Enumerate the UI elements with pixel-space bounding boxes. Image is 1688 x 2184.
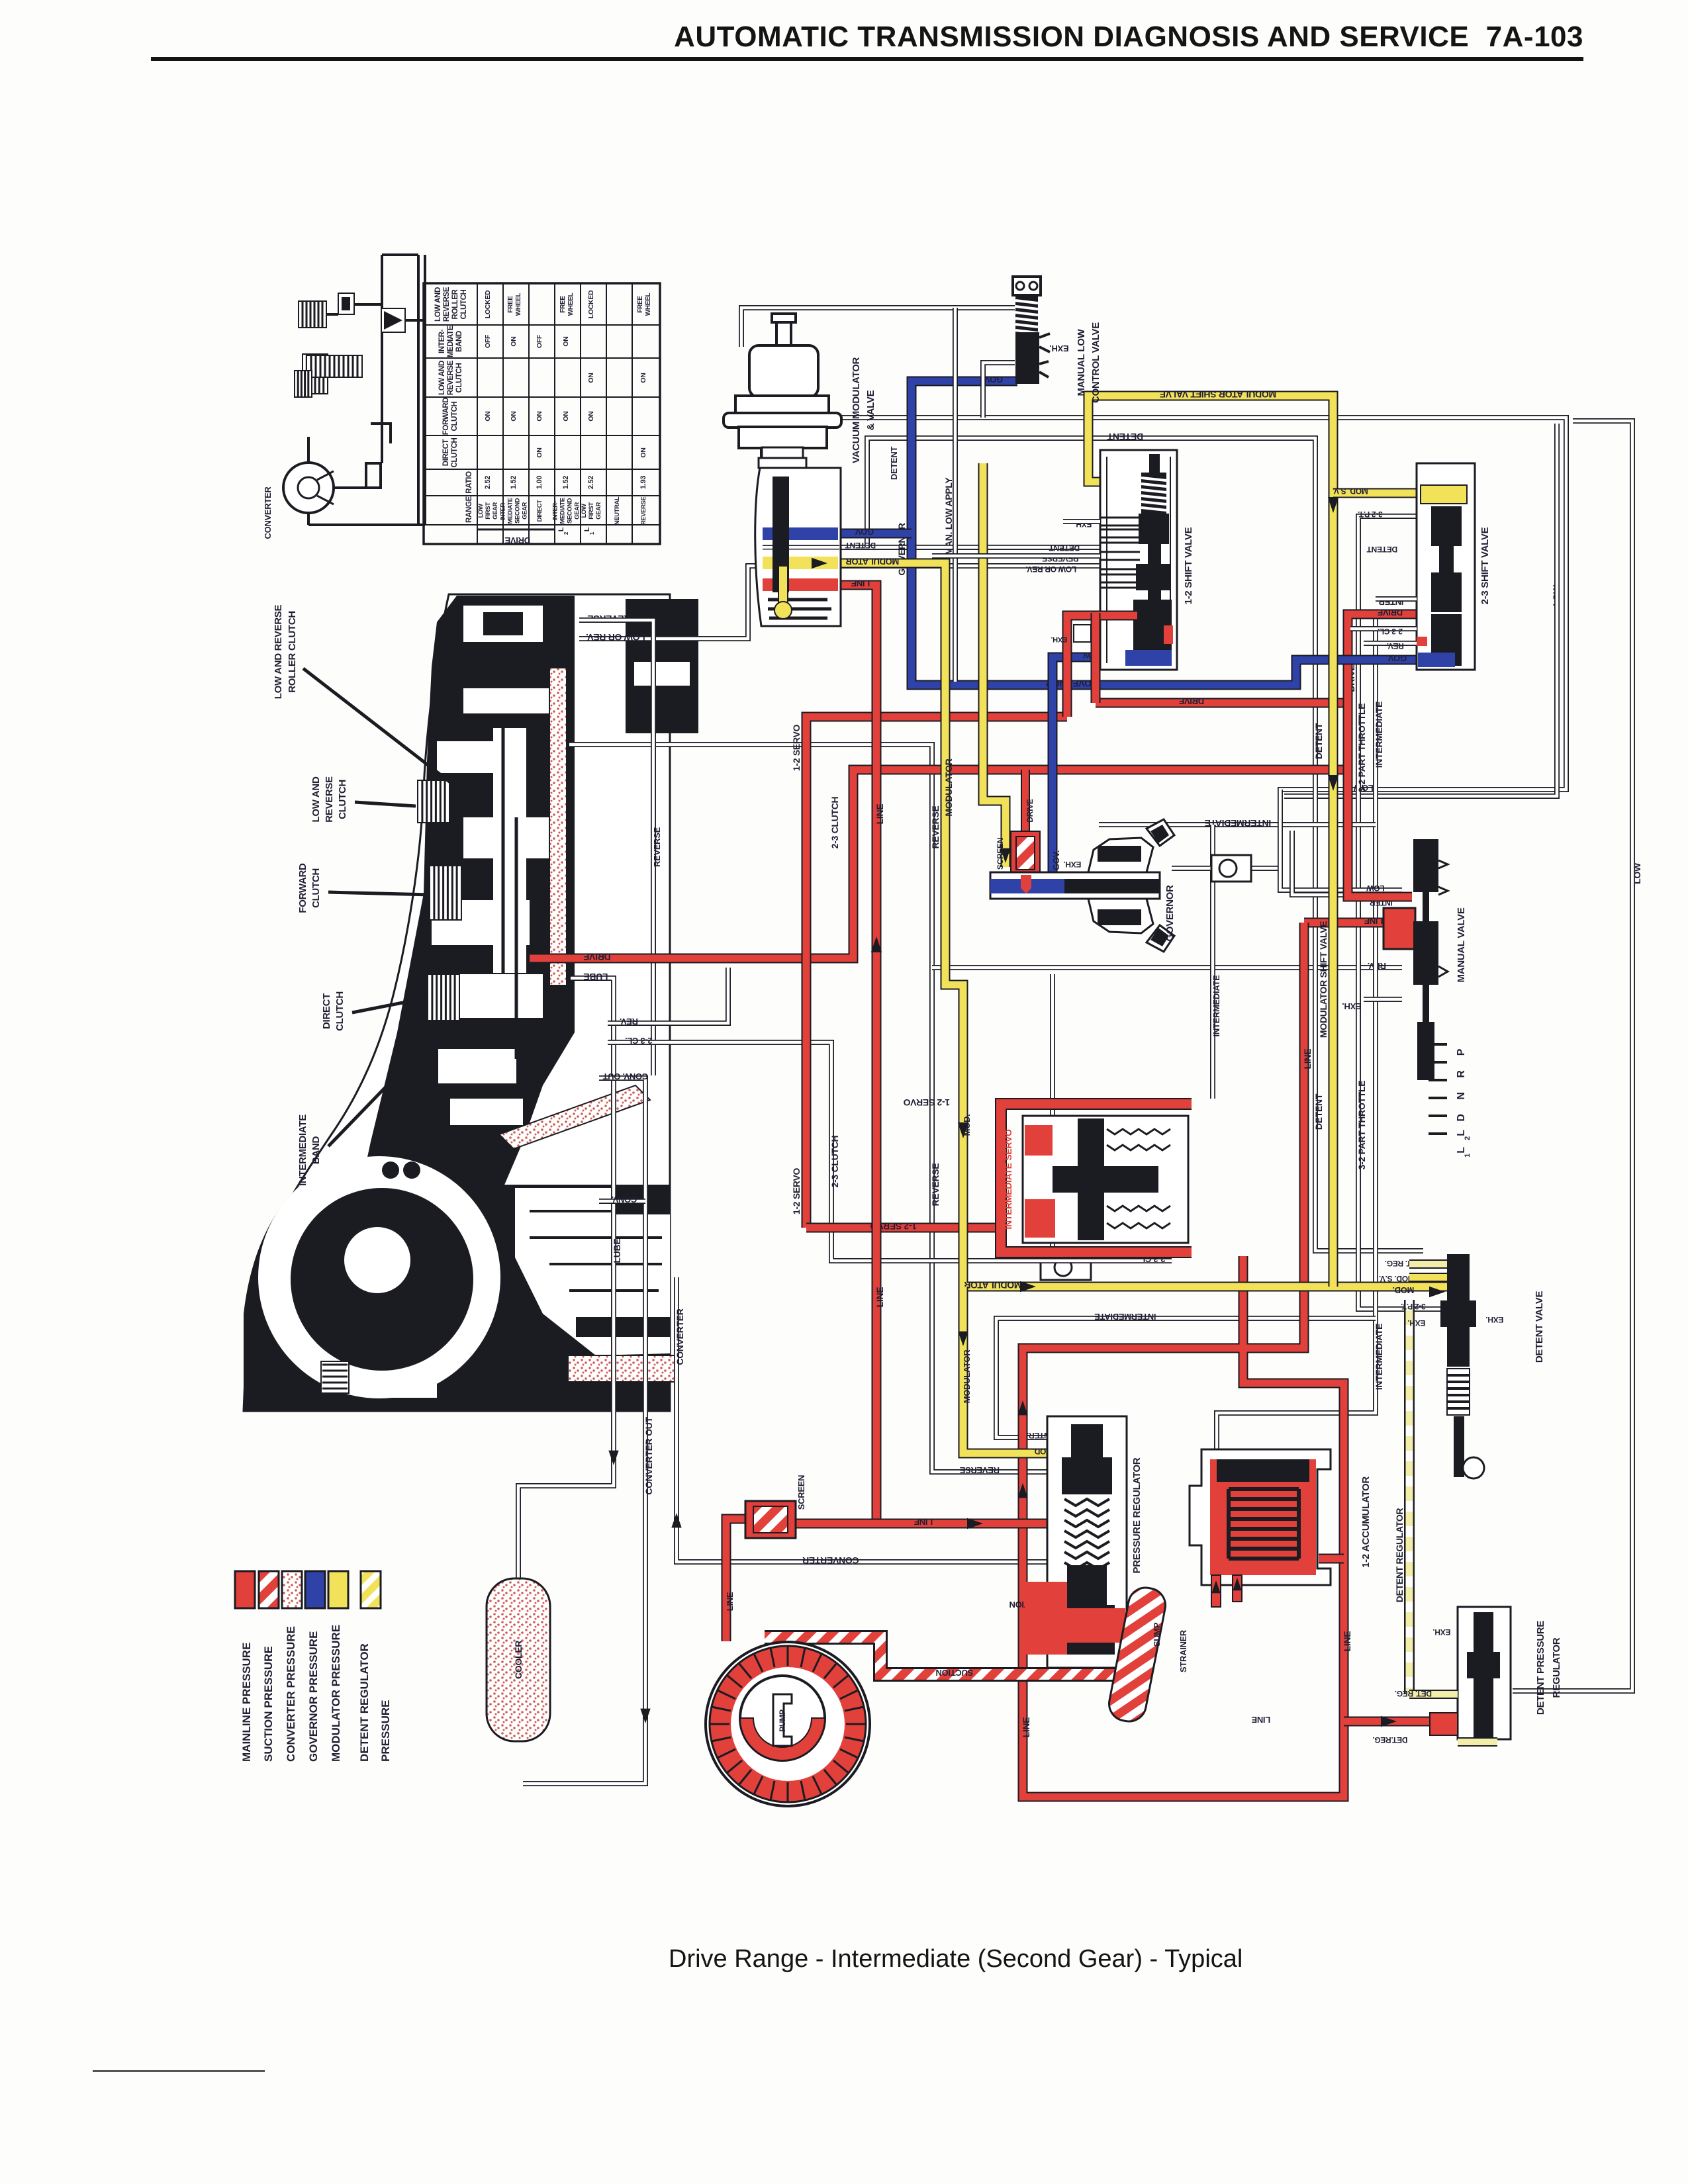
svg-text:MAN. LOW APPLY: MAN. LOW APPLY <box>943 477 954 555</box>
svg-text:ROLLER CLUTCH: ROLLER CLUTCH <box>287 611 298 693</box>
svg-text:1.52: 1.52 <box>562 476 570 489</box>
svg-text:LOW: LOW <box>581 504 588 518</box>
svg-text:MANUAL LOW: MANUAL LOW <box>1076 328 1087 396</box>
svg-text:LINE: LINE <box>851 578 870 588</box>
svg-text:REVERSE: REVERSE <box>324 776 335 823</box>
svg-text:DETENT: DETENT <box>845 541 876 550</box>
svg-text:CLUTCH: CLUTCH <box>455 363 463 392</box>
svg-text:CONVERTER: CONVERTER <box>675 1308 685 1365</box>
svg-text:CONVERTER: CONVERTER <box>802 1555 859 1566</box>
svg-text:DETENT: DETENT <box>889 447 899 480</box>
svg-text:CLUTCH: CLUTCH <box>460 289 468 319</box>
svg-text:MODULATOR: MODULATOR <box>964 1280 1021 1291</box>
svg-text:CONV.: CONV. <box>612 1195 637 1205</box>
svg-text:MEDIATE: MEDIATE <box>447 325 455 357</box>
svg-text:L: L <box>557 527 565 531</box>
svg-text:LOW OR REV.: LOW OR REV. <box>1026 565 1076 574</box>
svg-text:2-3 CL.: 2-3 CL. <box>625 1036 652 1046</box>
svg-text:INTERMEDIATE SERVO: INTERMEDIATE SERVO <box>1003 1129 1013 1230</box>
svg-text:MEDIATE: MEDIATE <box>559 498 567 523</box>
svg-text:REVERSE: REVERSE <box>447 360 455 395</box>
svg-text:REVERSE: REVERSE <box>652 827 662 867</box>
svg-text:RANGE: RANGE <box>465 496 473 523</box>
svg-text:WHEEL: WHEEL <box>567 293 575 316</box>
svg-text:GEAR: GEAR <box>492 502 499 520</box>
svg-text:DRIVE: DRIVE <box>1025 799 1035 822</box>
svg-text:DETENT: DETENT <box>1049 543 1080 553</box>
svg-text:MAINLINE PRESSURE: MAINLINE PRESSURE <box>240 1643 253 1762</box>
svg-text:SUCTION PRESSURE: SUCTION PRESSURE <box>262 1646 275 1762</box>
svg-text:GOV.: GOV. <box>854 527 874 537</box>
svg-text:ROLLER: ROLLER <box>451 289 459 319</box>
svg-text:LINE: LINE <box>1342 1631 1352 1652</box>
svg-text:CONTROL VALVE: CONTROL VALVE <box>1090 322 1102 403</box>
svg-text:2-3 SHIFT VALVE: 2-3 SHIFT VALVE <box>1479 527 1491 604</box>
svg-text:INTERMEDIATE: INTERMEDIATE <box>1094 1312 1156 1322</box>
svg-text:L: L <box>1456 1130 1467 1136</box>
svg-text:REV.: REV. <box>1387 641 1404 651</box>
svg-text:2: 2 <box>1464 1136 1472 1140</box>
svg-text:ON: ON <box>510 336 518 346</box>
svg-text:AUTOMATIC TRANSMISSION DIAGNOS: AUTOMATIC TRANSMISSION DIAGNOSIS AND SER… <box>674 21 1583 53</box>
svg-text:LOW OR REV.: LOW OR REV. <box>586 632 645 643</box>
svg-text:CONVERTER OUT: CONVERTER OUT <box>643 1417 654 1495</box>
svg-text:FORWARD: FORWARD <box>297 863 308 913</box>
svg-text:ON: ON <box>639 447 647 457</box>
svg-text:LOCKED: LOCKED <box>484 290 492 318</box>
svg-text:DETENT: DETENT <box>1313 723 1324 759</box>
svg-text:LOCKED: LOCKED <box>587 290 595 318</box>
svg-text:EXH.: EXH. <box>1433 1627 1451 1637</box>
svg-text:ON: ON <box>484 411 492 421</box>
svg-text:1-2 SHIFT VALVE: 1-2 SHIFT VALVE <box>1183 527 1194 604</box>
svg-text:INTERMEDIATE: INTERMEDIATE <box>1374 702 1384 768</box>
svg-text:WHEEL: WHEEL <box>515 293 522 316</box>
svg-text:ON: ON <box>639 373 647 383</box>
svg-text:INTERMEDIATE: INTERMEDIATE <box>1374 1324 1384 1390</box>
svg-text:2.52: 2.52 <box>484 476 492 489</box>
svg-text:FREE: FREE <box>507 296 514 313</box>
svg-text:MODULATOR PRESSURE: MODULATOR PRESSURE <box>330 1625 342 1762</box>
svg-text:1-2 SERVO: 1-2 SERVO <box>791 724 802 771</box>
svg-text:EXH.: EXH. <box>1051 635 1068 643</box>
svg-text:3-2 P.T.: 3-2 P.T. <box>1358 510 1382 519</box>
svg-text:DETENT REGULATOR: DETENT REGULATOR <box>1394 1508 1405 1603</box>
svg-text:GOVERNOR: GOVERNOR <box>1164 885 1176 942</box>
svg-text:& VALVE: & VALVE <box>865 390 876 430</box>
svg-text:DRIVE: DRIVE <box>1178 696 1204 706</box>
svg-text:REVERSE: REVERSE <box>930 1163 941 1206</box>
svg-text:2-3 CLUTCH: 2-3 CLUTCH <box>829 1135 840 1187</box>
svg-text:FORWARD: FORWARD <box>442 398 450 435</box>
svg-text:PRESSURE REGULATOR: PRESSURE REGULATOR <box>1131 1457 1143 1573</box>
svg-text:Drive Range - Intermediate (Se: Drive Range - Intermediate (Second Gear)… <box>669 1945 1243 1973</box>
svg-text:DRIVE: DRIVE <box>504 535 530 545</box>
svg-text:INTERMEDIATE: INTERMEDIATE <box>1211 975 1221 1037</box>
svg-text:FREE: FREE <box>637 296 644 313</box>
svg-text:PUMP: PUMP <box>778 1709 787 1732</box>
svg-text:ON: ON <box>536 447 543 457</box>
svg-text:REV.: REV. <box>620 1017 638 1026</box>
svg-text:ON: ON <box>562 336 570 346</box>
svg-text:RATIO: RATIO <box>465 471 473 494</box>
svg-text:LUBE: LUBE <box>584 972 608 982</box>
svg-text:LINE: LINE <box>1021 1717 1031 1738</box>
svg-text:FIRST: FIRST <box>485 502 492 520</box>
svg-text:FREE: FREE <box>559 296 567 313</box>
svg-text:GOVERNOR PRESSURE: GOVERNOR PRESSURE <box>307 1631 320 1762</box>
svg-text:DET.REG.: DET.REG. <box>1373 1735 1408 1745</box>
svg-text:LOW AND: LOW AND <box>310 776 322 822</box>
svg-text:MODULATOR SHIFT VALVE: MODULATOR SHIFT VALVE <box>1318 921 1329 1038</box>
svg-text:REVERSE: REVERSE <box>443 287 451 322</box>
svg-text:DIRECT: DIRECT <box>536 500 543 522</box>
svg-text:VACUUM MODULATOR: VACUUM MODULATOR <box>851 357 862 463</box>
svg-text:INTER-: INTER- <box>552 501 559 521</box>
svg-text:R: R <box>1456 1070 1467 1078</box>
svg-text:3-2 PART THROTTLE: 3-2 PART THROTTLE <box>1356 1081 1367 1170</box>
svg-text:MOD. S.V.: MOD. S.V. <box>1379 1274 1415 1283</box>
svg-text:DETENT PRESSURE: DETENT PRESSURE <box>1535 1621 1546 1715</box>
svg-text:1.52: 1.52 <box>510 476 518 489</box>
svg-text:MANUAL VALVE: MANUAL VALVE <box>1456 907 1467 982</box>
svg-text:REVERSE: REVERSE <box>959 1465 1000 1475</box>
svg-text:LOW: LOW <box>1632 862 1642 884</box>
svg-text:MODULATOR: MODULATOR <box>845 557 899 567</box>
svg-text:MODULATOR SHIFT VALVE: MODULATOR SHIFT VALVE <box>1160 389 1276 400</box>
svg-text:2.52: 2.52 <box>587 476 595 489</box>
svg-text:MOD. S.V.: MOD. S.V. <box>1333 486 1368 496</box>
svg-text:MEDIATE: MEDIATE <box>507 498 514 523</box>
svg-text:GEAR: GEAR <box>522 502 529 520</box>
svg-text:INTER-: INTER- <box>500 501 507 521</box>
svg-text:ON: ON <box>536 411 543 421</box>
svg-text:REGULATOR: REGULATOR <box>1551 1637 1562 1698</box>
svg-text:L: L <box>583 527 591 531</box>
svg-text:LINE: LINE <box>914 1517 933 1527</box>
svg-text:EXH.: EXH. <box>1342 1001 1361 1011</box>
svg-text:CLUTCH: CLUTCH <box>334 991 346 1031</box>
svg-text:ON: ON <box>510 411 518 421</box>
svg-text:GEAR: GEAR <box>574 502 581 520</box>
svg-text:N: N <box>1456 1092 1467 1099</box>
svg-text:SUMP: SUMP <box>1152 1622 1162 1647</box>
svg-text:GOV.: GOV. <box>1051 850 1061 870</box>
svg-text:LUBE: LUBE <box>612 1239 622 1263</box>
svg-text:GOV.: GOV. <box>1387 653 1407 663</box>
svg-text:3-2 P.T.: 3-2 P.T. <box>1401 1302 1425 1311</box>
svg-text:LINE: LINE <box>874 804 885 825</box>
svg-text:DETENT REGULATOR: DETENT REGULATOR <box>358 1643 371 1762</box>
svg-text:GOV.: GOV. <box>983 375 1003 385</box>
svg-text:MOD.: MOD. <box>1393 1285 1415 1295</box>
svg-text:1.93: 1.93 <box>639 476 647 489</box>
svg-text:SECOND: SECOND <box>514 498 522 523</box>
svg-text:2-3 CLUTCH: 2-3 CLUTCH <box>829 796 840 848</box>
svg-text:SCREEN: SCREEN <box>996 838 1005 870</box>
svg-text:LINE: LINE <box>1251 1715 1270 1725</box>
svg-text:CLUTCH: CLUTCH <box>451 401 459 431</box>
svg-text:SCREEN: SCREEN <box>796 1475 806 1510</box>
svg-text:WHEEL: WHEEL <box>645 293 652 316</box>
svg-text:CLUTCH: CLUTCH <box>337 780 348 819</box>
svg-text:LOW AND: LOW AND <box>434 287 442 322</box>
svg-text:LINE: LINE <box>874 1287 885 1308</box>
svg-text:DETENT VALVE: DETENT VALVE <box>1534 1291 1545 1363</box>
svg-text:LINE: LINE <box>1364 916 1383 926</box>
svg-text:REVERSE: REVERSE <box>930 806 941 849</box>
svg-text:LOW: LOW <box>477 504 485 518</box>
svg-text:BAND: BAND <box>310 1136 322 1164</box>
svg-text:CLUTCH: CLUTCH <box>310 868 322 908</box>
svg-text:1: 1 <box>1464 1154 1472 1158</box>
svg-text:L: L <box>1456 1147 1467 1154</box>
svg-text:LINE: LINE <box>1302 1049 1313 1069</box>
svg-text:CONVERTER PRESSURE: CONVERTER PRESSURE <box>285 1626 297 1762</box>
svg-text:LOW: LOW <box>1366 884 1384 893</box>
svg-text:DRIVE: DRIVE <box>1377 608 1403 617</box>
svg-text:ON: ON <box>587 411 595 421</box>
svg-text:DIRECT: DIRECT <box>321 993 332 1029</box>
svg-text:MODULATOR: MODULATOR <box>962 1349 972 1403</box>
svg-text:1.00: 1.00 <box>536 476 543 489</box>
svg-text:NEUTRAL: NEUTRAL <box>614 496 621 525</box>
svg-text:BAND: BAND <box>455 331 463 352</box>
svg-text:REVERSE: REVERSE <box>640 497 647 525</box>
svg-text:D: D <box>1456 1114 1467 1121</box>
svg-text:DET. REG.: DET. REG. <box>1395 1689 1432 1698</box>
svg-text:DRIVE: DRIVE <box>583 952 610 962</box>
svg-text:SECOND: SECOND <box>567 498 574 523</box>
svg-text:LOW AND: LOW AND <box>438 361 446 395</box>
svg-text:1-2 SERVO: 1-2 SERVO <box>791 1167 802 1214</box>
svg-text:CONVERTER: CONVERTER <box>263 486 273 539</box>
svg-text:1-2 ACCUMULATOR: 1-2 ACCUMULATOR <box>1360 1477 1372 1568</box>
svg-text:CONV. OUT: CONV. OUT <box>602 1071 648 1081</box>
svg-text:SUCTION: SUCTION <box>936 1668 973 1678</box>
svg-text:2-3 CL.: 2-3 CL. <box>1378 627 1403 636</box>
svg-text:EXH.: EXH. <box>1408 1318 1426 1328</box>
svg-text:LOW AND REVERSE: LOW AND REVERSE <box>273 604 284 699</box>
svg-text:DETENT: DETENT <box>1313 1093 1324 1130</box>
svg-text:3-2 PART THROTTLE: 3-2 PART THROTTLE <box>1356 704 1367 793</box>
svg-text:STRAINER: STRAINER <box>1178 1629 1188 1672</box>
svg-text:DETENT: DETENT <box>1366 545 1397 554</box>
svg-text:OFF: OFF <box>536 334 543 348</box>
svg-text:GEAR: GEAR <box>595 502 602 520</box>
svg-text:P: P <box>1456 1048 1467 1056</box>
svg-text:EXH.: EXH. <box>1486 1315 1504 1324</box>
svg-text:INTER-: INTER- <box>438 329 446 353</box>
svg-text:DIRECT: DIRECT <box>442 439 450 466</box>
svg-text:PRESSURE: PRESSURE <box>379 1700 392 1762</box>
svg-text:DETENT: DETENT <box>1107 432 1143 442</box>
svg-text:ON: ON <box>587 373 595 383</box>
svg-text:EXH.: EXH. <box>1049 343 1068 353</box>
svg-text:OFF: OFF <box>484 334 492 348</box>
svg-text:LINE: LINE <box>725 1592 735 1611</box>
svg-text:ON: ON <box>562 411 570 421</box>
svg-text:COOLER: COOLER <box>513 1641 524 1679</box>
svg-text:EXH.: EXH. <box>1064 860 1082 869</box>
svg-text:FIRST: FIRST <box>588 502 595 520</box>
svg-text:INTERMEDIATE: INTERMEDIATE <box>297 1115 308 1186</box>
svg-text:CLUTCH: CLUTCH <box>451 437 459 467</box>
svg-text:1-2 SERVO: 1-2 SERVO <box>903 1097 950 1108</box>
svg-text:MODULATOR: MODULATOR <box>943 758 954 816</box>
